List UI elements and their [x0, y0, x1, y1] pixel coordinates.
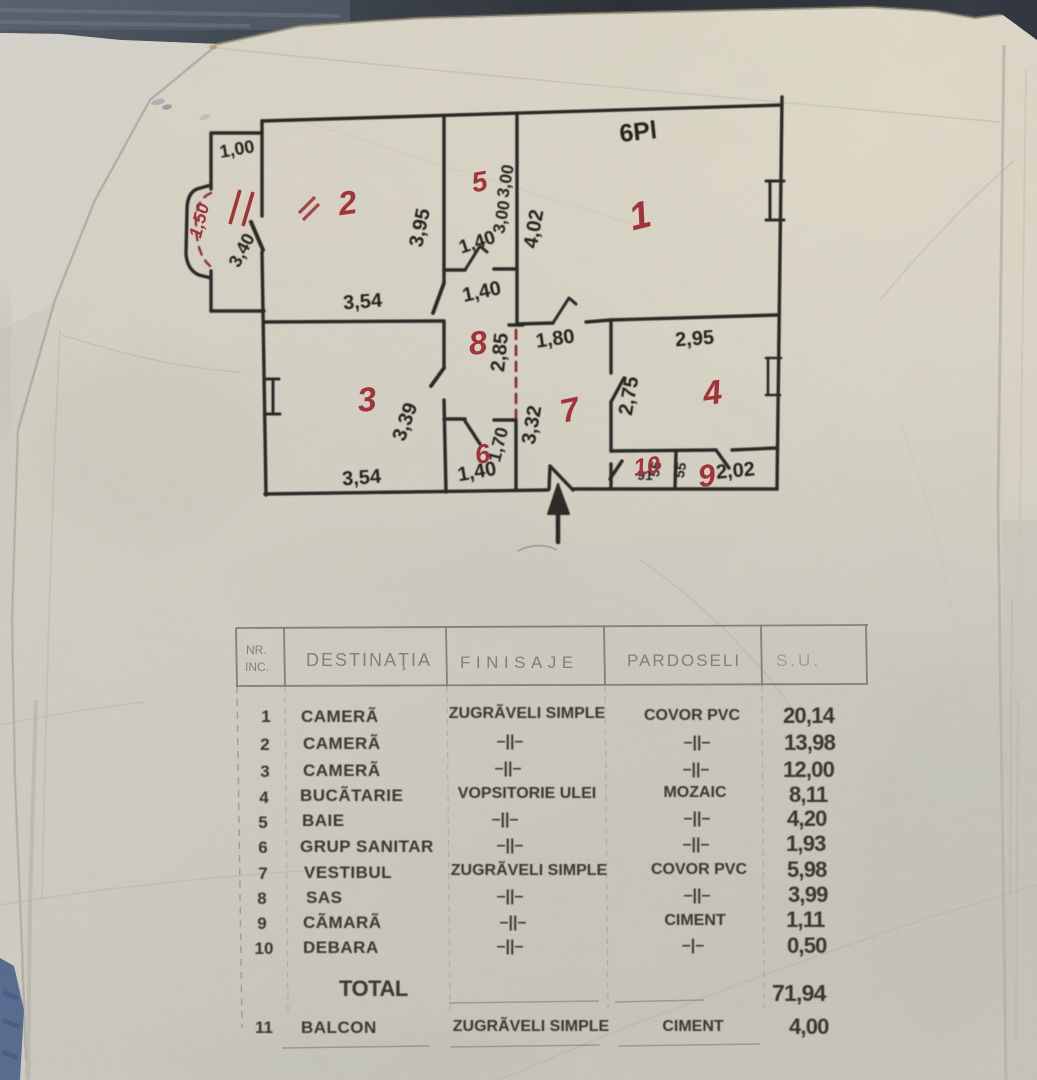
svg-text:COVOR PVC: COVOR PVC: [651, 861, 747, 878]
svg-text:–||–: –||–: [683, 761, 710, 778]
svg-text:–||–: –||–: [684, 734, 711, 751]
svg-text:CIMENT: CIMENT: [662, 1018, 724, 1035]
svg-text:4: 4: [259, 788, 269, 807]
svg-text:11: 11: [255, 1018, 273, 1037]
svg-text:BAIE: BAIE: [302, 811, 345, 830]
svg-text:2,02: 2,02: [715, 458, 756, 483]
svg-text:2: 2: [260, 735, 269, 754]
svg-text:5,98: 5,98: [787, 857, 827, 882]
svg-text:CAMERÃ: CAMERÃ: [303, 760, 381, 780]
svg-text:–|–: –|–: [682, 937, 704, 954]
svg-text:ZUGRÃVELI SIMPLE: ZUGRÃVELI SIMPLE: [451, 859, 608, 879]
svg-text:–||–: –||–: [684, 810, 711, 827]
svg-text:SAS: SAS: [306, 888, 342, 907]
svg-text:DEBARA: DEBARA: [303, 938, 379, 957]
svg-text:1,11: 1,11: [786, 907, 825, 932]
svg-text:NR.: NR.: [246, 643, 267, 657]
svg-text:3,54: 3,54: [341, 466, 382, 491]
svg-text:3,99: 3,99: [788, 882, 828, 907]
svg-text:6Pl: 6Pl: [618, 116, 658, 148]
svg-text:MOZAIC: MOZAIC: [663, 784, 727, 801]
svg-text:10: 10: [632, 451, 663, 482]
svg-text:VOPSITORIE ULEI: VOPSITORIE ULEI: [458, 785, 596, 802]
svg-text:0,50: 0,50: [787, 933, 827, 958]
svg-text:12,00: 12,00: [783, 757, 835, 782]
svg-text:PARDOSELI: PARDOSELI: [627, 651, 741, 670]
svg-text:DESTINAŢIA: DESTINAŢIA: [306, 650, 432, 670]
svg-text:4,20: 4,20: [787, 806, 827, 831]
svg-text:INC.: INC.: [245, 660, 269, 674]
svg-text:CAMERÃ: CAMERÃ: [301, 706, 379, 726]
svg-text:CIMENT: CIMENT: [664, 912, 726, 929]
svg-text:–||–: –||–: [683, 836, 710, 853]
svg-text:13,98: 13,98: [784, 730, 836, 755]
svg-text:GRUP SANITAR: GRUP SANITAR: [300, 837, 434, 856]
svg-text:10: 10: [255, 939, 274, 958]
svg-text:–||–: –||–: [495, 760, 522, 777]
svg-text:S.U.: S.U.: [776, 651, 821, 670]
svg-text:FINISAJE: FINISAJE: [460, 653, 579, 672]
svg-text:8,11: 8,11: [789, 782, 828, 807]
svg-text:4,00: 4,00: [789, 1014, 829, 1039]
svg-text:–||–: –||–: [497, 733, 524, 750]
svg-text:71,94: 71,94: [772, 980, 827, 1006]
svg-text:–||–: –||–: [497, 888, 524, 905]
svg-text:3: 3: [355, 380, 378, 420]
svg-text:1,93: 1,93: [786, 831, 826, 856]
svg-text:VESTIBUL: VESTIBUL: [304, 863, 392, 882]
svg-text:3,54: 3,54: [342, 290, 383, 315]
svg-text:ZUGRÃVELI SIMPLE: ZUGRÃVELI SIMPLE: [449, 702, 606, 722]
svg-text:9: 9: [257, 914, 266, 933]
svg-text:20,14: 20,14: [783, 703, 836, 728]
svg-text:7: 7: [258, 864, 267, 883]
svg-text:TOTAL: TOTAL: [339, 976, 408, 1001]
svg-text:CAMERÃ: CAMERÃ: [303, 733, 381, 753]
svg-text:–||–: –||–: [497, 837, 524, 854]
svg-text:–||–: –||–: [500, 914, 527, 931]
svg-text:BUCÃTARIE: BUCÃTARIE: [300, 785, 403, 805]
svg-text:COVOR PVC: COVOR PVC: [644, 707, 740, 724]
svg-text:CÃMARÃ: CÃMARÃ: [303, 912, 382, 932]
svg-text:55: 55: [671, 461, 689, 479]
svg-text:8: 8: [257, 889, 266, 908]
svg-text:5: 5: [258, 813, 267, 832]
svg-text:–||–: –||–: [684, 887, 711, 904]
svg-text:1: 1: [261, 707, 270, 726]
svg-text:3: 3: [260, 762, 269, 781]
svg-text:2,85: 2,85: [487, 332, 513, 373]
svg-text:–||–: –||–: [497, 938, 524, 955]
svg-text:BALCON: BALCON: [301, 1018, 377, 1037]
svg-text:2,95: 2,95: [674, 327, 714, 352]
svg-text:6: 6: [258, 838, 267, 857]
svg-text:ZUGRÃVELI SIMPLE: ZUGRÃVELI SIMPLE: [453, 1015, 610, 1035]
svg-text:–||–: –||–: [492, 811, 519, 828]
